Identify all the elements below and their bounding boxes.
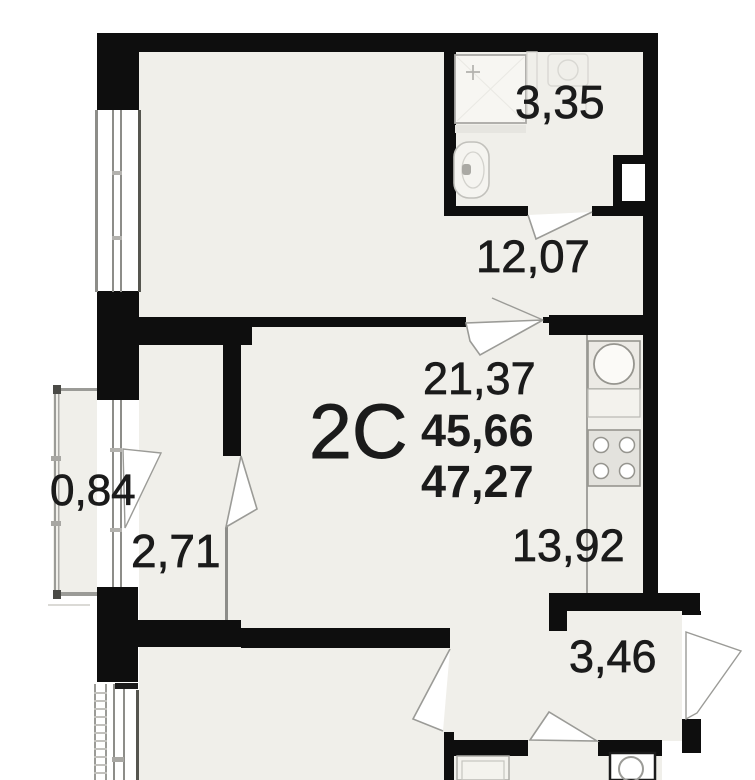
svg-text:13,92: 13,92 [512,520,625,571]
svg-text:3,46: 3,46 [569,631,657,682]
svg-text:2,71: 2,71 [131,525,221,577]
svg-text:0,84: 0,84 [50,466,136,515]
svg-text:21,37: 21,37 [423,353,536,404]
svg-text:45,66: 45,66 [421,405,534,456]
svg-text:3,35: 3,35 [515,76,605,128]
svg-text:2С: 2С [309,389,407,475]
svg-text:12,07: 12,07 [476,231,590,282]
svg-text:47,27: 47,27 [421,456,534,507]
